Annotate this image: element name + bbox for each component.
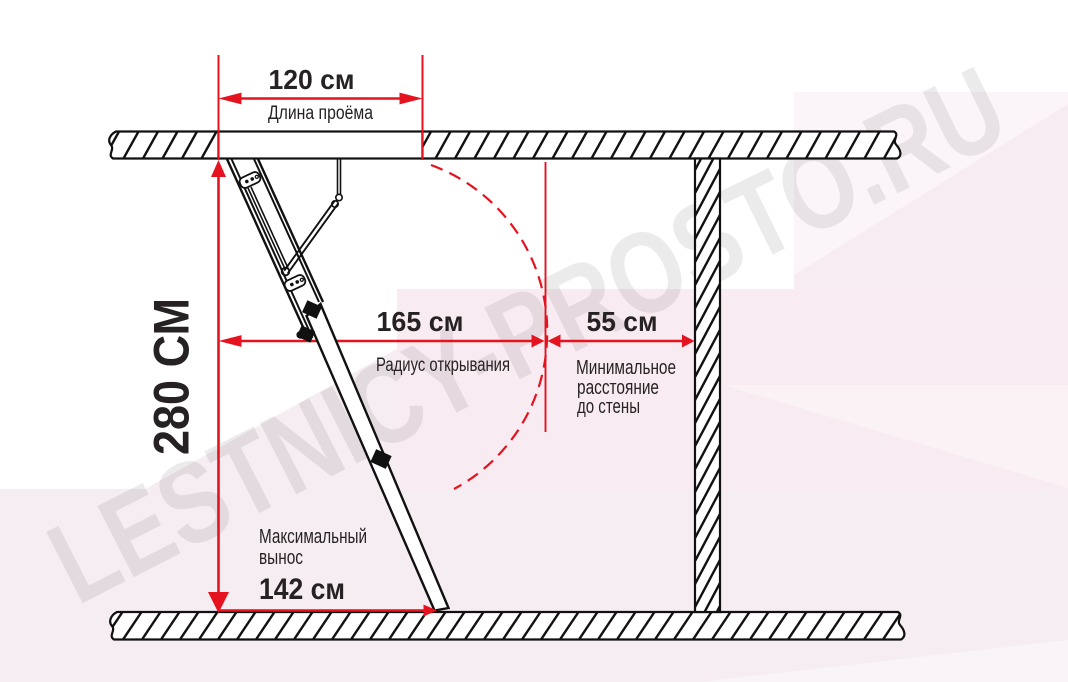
svg-text:120 см: 120 см: [269, 64, 355, 95]
svg-text:вынос: вынос: [259, 547, 303, 569]
svg-text:280 СМ: 280 СМ: [143, 298, 200, 455]
svg-text:до стены: до стены: [577, 396, 640, 418]
svg-text:Максимальный: Максимальный: [259, 526, 367, 548]
svg-text:55 см: 55 см: [587, 306, 658, 337]
svg-text:Радиус открывания: Радиус открывания: [376, 355, 510, 376]
svg-text:142 см: 142 см: [259, 573, 345, 606]
svg-text:Длина проёма: Длина проёма: [268, 103, 373, 124]
svg-text:Минимальное: Минимальное: [576, 357, 676, 379]
svg-text:165 см: 165 см: [377, 306, 464, 337]
